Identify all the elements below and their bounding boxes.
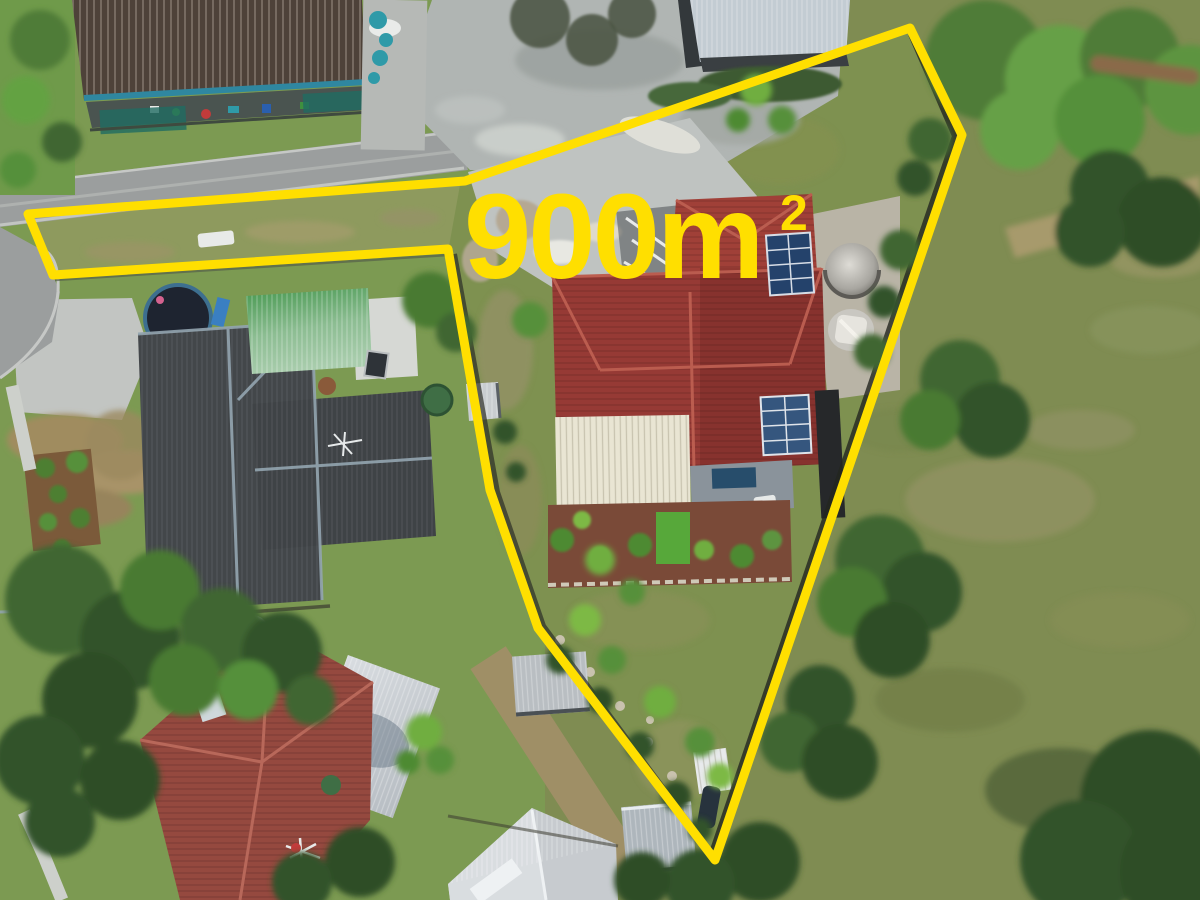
leaning-solar-panel [364, 351, 388, 379]
aerial-scene-canvas [0, 0, 1200, 900]
area-size-label: 900m [464, 176, 761, 297]
green-turf-patch [656, 512, 690, 564]
area-size-superscript: 2 [780, 188, 808, 238]
charcoal-wing-texture [252, 390, 436, 550]
pool-table [712, 467, 757, 489]
green-roof-corrugation [246, 288, 372, 374]
roof-vent [321, 775, 341, 795]
aerial-property-photo: 900m 2 [0, 0, 1200, 900]
brown-pot [318, 377, 336, 395]
solar-array-upper [766, 233, 814, 296]
solar-array-lower [761, 395, 812, 455]
trampoline-handle [156, 296, 164, 304]
green-water-tank [422, 385, 452, 415]
